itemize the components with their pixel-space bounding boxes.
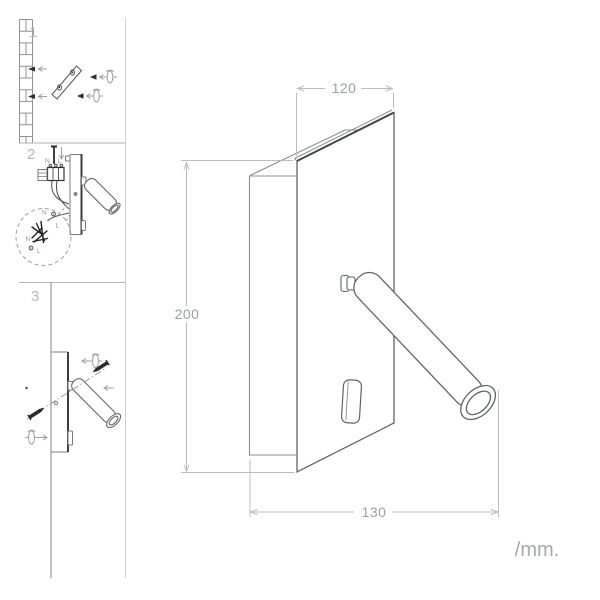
- dim-width-top-label: 120: [327, 80, 361, 96]
- screw-rotation-icons: [77, 70, 117, 102]
- wires: [48, 181, 70, 221]
- wire-label-l1: L: [56, 223, 60, 230]
- dim-height-label: 200: [166, 306, 208, 322]
- unit-label: /mm.: [503, 539, 571, 562]
- spotlight-knob: [341, 276, 355, 292]
- technical-drawing: N L: [0, 0, 600, 600]
- wire-label-n1: N: [42, 210, 47, 217]
- lamp-side-view: [66, 154, 122, 235]
- step-2-number: 2: [27, 146, 35, 163]
- step3-diagram: [25, 283, 123, 578]
- rotation-icon-lower: [25, 430, 47, 444]
- lamp-side-view-2: [51, 352, 123, 452]
- screw-icon: [51, 147, 57, 165]
- reference-dot: [25, 387, 27, 389]
- push-arrow-icon: [104, 386, 114, 391]
- rocker-switch: [341, 379, 362, 423]
- screw-lower: [28, 405, 46, 420]
- step-3-number: 3: [31, 288, 39, 305]
- wire-label-n-top: N: [45, 158, 50, 165]
- terminal-block: [48, 164, 65, 180]
- wire-label-l2: L: [37, 248, 41, 255]
- connector-box: [38, 170, 47, 181]
- dim-width-bottom-label: 130: [356, 504, 392, 520]
- wire-label-n2: N: [26, 236, 31, 243]
- step2-diagram: N L: [16, 147, 122, 266]
- lamp-3d-view: [250, 110, 502, 472]
- rotation-icon-upper: [82, 354, 102, 368]
- step-1-number: 1: [29, 24, 37, 41]
- installation-drawing-page: N L: [0, 0, 600, 600]
- mounting-bracket: [52, 66, 82, 99]
- screw-into-wall-icons: [28, 67, 47, 100]
